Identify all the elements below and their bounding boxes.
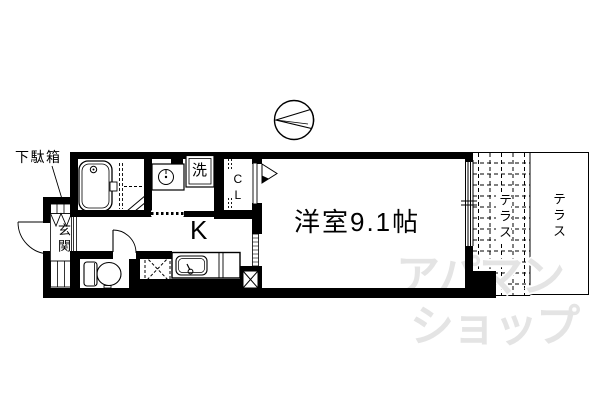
room-sliding-door [253,234,259,266]
pipe-space-box [243,271,258,288]
wall-right-bottom [465,246,473,298]
wall-bottom [43,288,473,298]
shoe-box-leader-line [52,166,62,199]
wall-entrance-left-upper [43,197,50,223]
wall-room-left-b [252,203,262,234]
bath-door-fold-marks [127,195,146,211]
wall-top [70,152,473,159]
wall-toilet-top-right [136,251,172,259]
compass-icon [275,101,314,140]
entrance-label: 玄関 [55,223,70,255]
toilet-tank [84,262,97,286]
closet-label: CL [230,172,244,204]
main-room-label: 洋室9.1帖 [294,208,420,238]
bath-counter [110,182,117,191]
entrance-door-swing [18,222,50,254]
wall-washroom-closet [214,152,224,218]
floor-plan-canvas: アパマン ショップ [0,0,600,400]
wall-terrace-block [472,271,496,298]
wash-basin [152,164,184,190]
shoe-box-label: 下駄箱 [15,149,62,165]
kitchen-label: K [190,216,207,246]
toilet-bowl [97,263,121,286]
shoe-cabinet [51,204,72,214]
bath-door-dashed [120,163,147,209]
entrance-step-cells [51,261,72,287]
window-sliding-door [461,160,477,246]
washer-label: 洗 [192,162,207,179]
wall-toilet-top-left [78,251,113,259]
wall-right-top [465,152,473,162]
toilet-door-swing [113,230,136,253]
bathtub [79,161,112,211]
wall-bath-bottom [70,210,152,217]
wall-bath-right [144,152,152,217]
terrace-outer-label: テラス [550,192,565,240]
terrace-inner-label: テラス [496,192,511,242]
refrigerator-space [145,256,170,282]
unit-bath [79,161,146,211]
closet-door [253,163,257,204]
